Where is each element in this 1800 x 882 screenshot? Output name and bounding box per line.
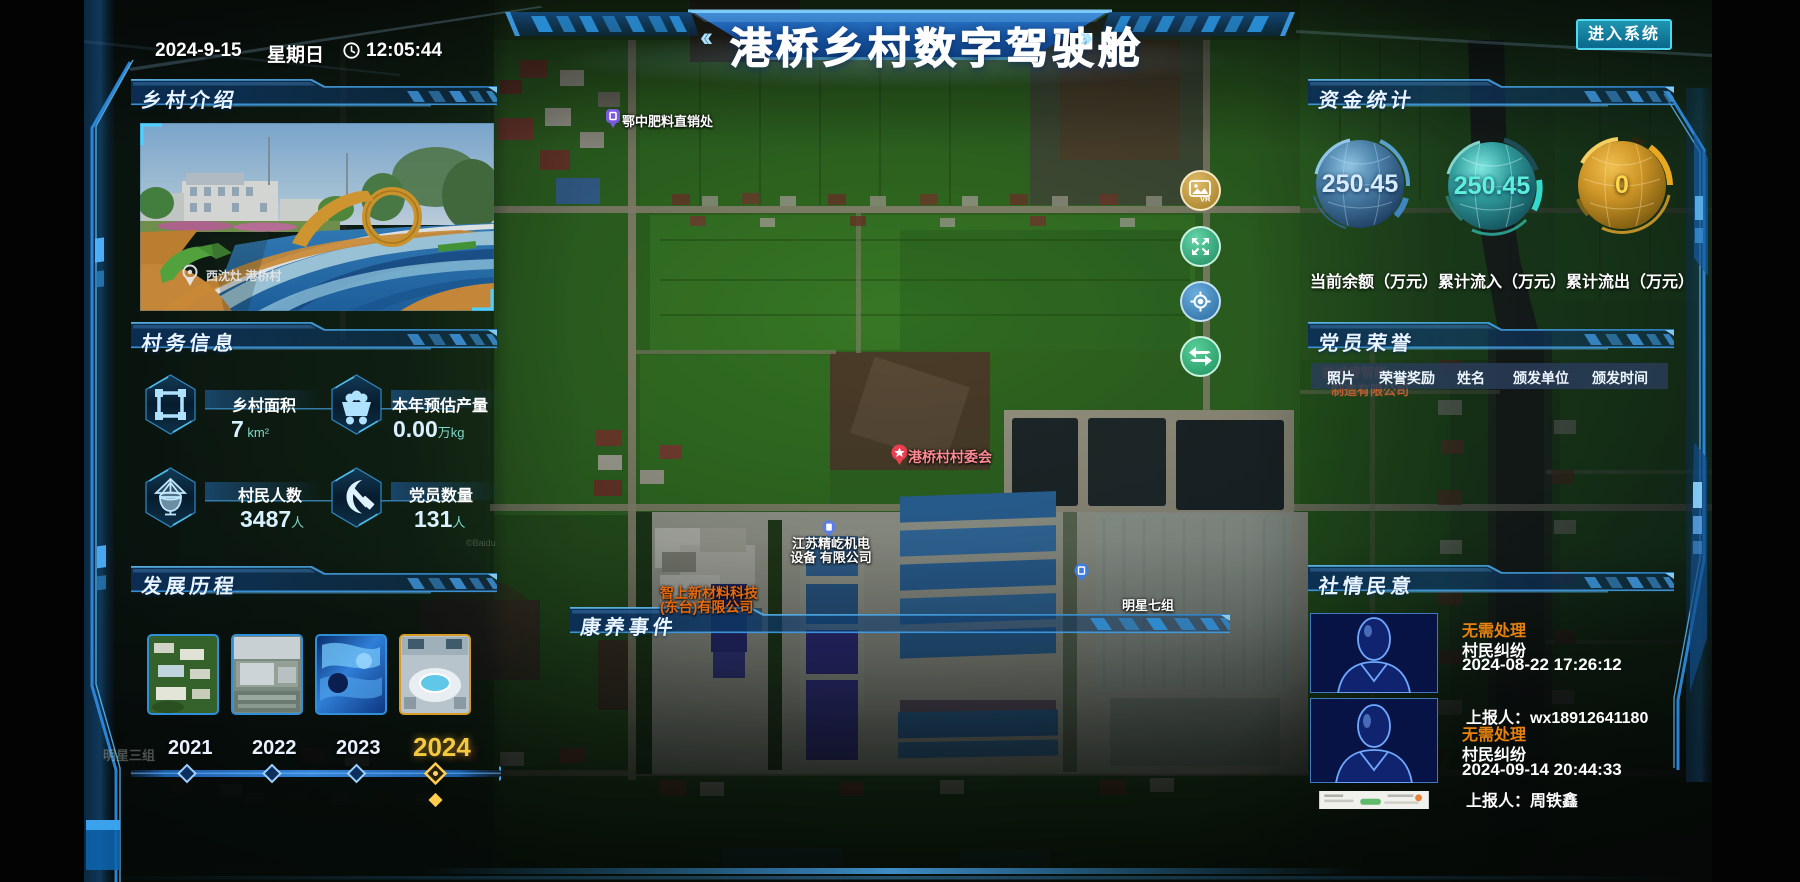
svg-text:VR: VR: [1200, 195, 1211, 203]
